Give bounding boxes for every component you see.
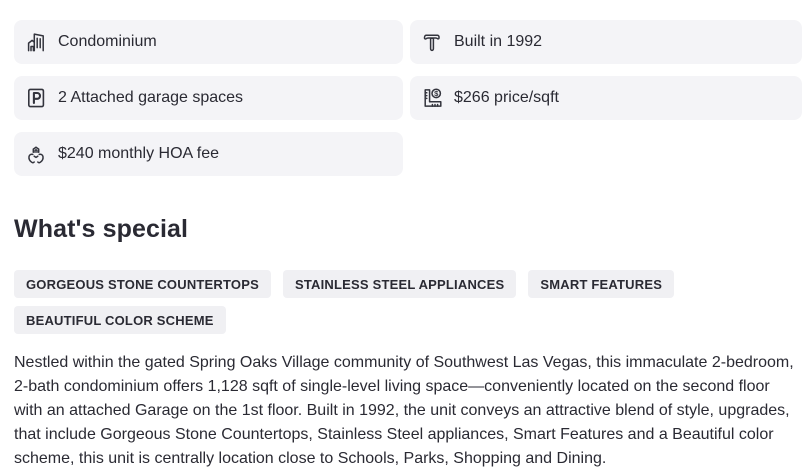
fact-card-home-type: Condominium bbox=[14, 20, 403, 64]
fact-label-home-type: Condominium bbox=[58, 30, 157, 54]
parking-icon bbox=[24, 86, 48, 110]
listing-description: Nestled within the gated Spring Oaks Vil… bbox=[14, 351, 794, 471]
ruler-dollar-icon: $ bbox=[420, 86, 444, 110]
fact-label-parking: 2 Attached garage spaces bbox=[58, 86, 243, 110]
facts-grid: Condominium Built in 1992 2 Attached gar… bbox=[14, 20, 802, 176]
fact-label-hoa-fee: $240 monthly HOA fee bbox=[58, 142, 219, 166]
hoa-hands-icon bbox=[24, 142, 48, 166]
tag-pill-beautiful-color-scheme: BEAUTIFUL COLOR SCHEME bbox=[14, 306, 226, 334]
fact-card-hoa-fee: $240 monthly HOA fee bbox=[14, 132, 403, 176]
listing-overview-section: Condominium Built in 1992 2 Attached gar… bbox=[0, 20, 808, 474]
tag-list: GORGEOUS STONE COUNTERTOPS STAINLESS STE… bbox=[14, 270, 794, 334]
tag-pill-smart-features: SMART FEATURES bbox=[528, 270, 674, 298]
building-icon bbox=[24, 30, 48, 54]
hammer-icon bbox=[420, 30, 444, 54]
fact-card-year-built: Built in 1992 bbox=[410, 20, 802, 64]
fact-card-parking: 2 Attached garage spaces bbox=[14, 76, 403, 120]
fact-label-year-built: Built in 1992 bbox=[454, 30, 542, 54]
fact-label-price-per-sqft: $266 price/sqft bbox=[454, 86, 559, 110]
tag-pill-gorgeous-stone-countertops: GORGEOUS STONE COUNTERTOPS bbox=[14, 270, 271, 298]
tag-pill-stainless-steel-appliances: STAINLESS STEEL APPLIANCES bbox=[283, 270, 516, 298]
fact-card-price-per-sqft: $ $266 price/sqft bbox=[410, 76, 802, 120]
whats-special-heading: What's special bbox=[14, 214, 808, 244]
